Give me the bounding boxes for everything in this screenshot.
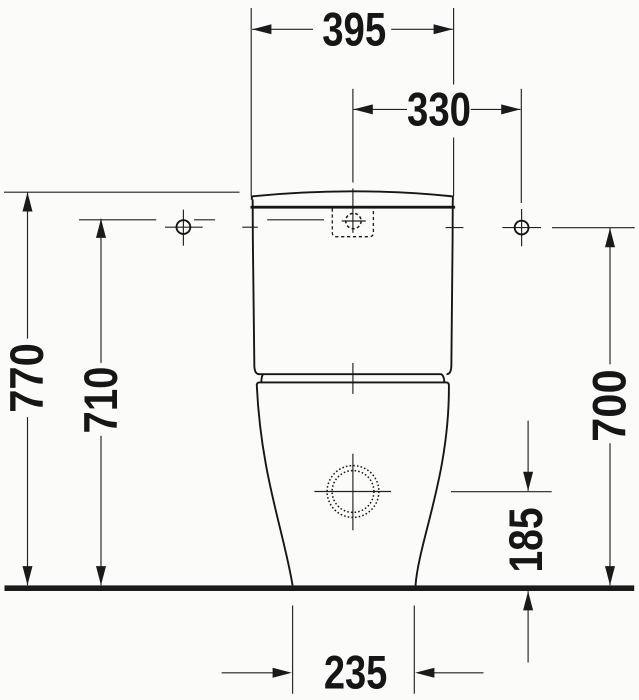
svg-text:700: 700 <box>583 369 636 442</box>
svg-text:710: 710 <box>75 367 128 434</box>
svg-text:330: 330 <box>407 83 471 136</box>
svg-text:395: 395 <box>322 4 386 57</box>
svg-text:770: 770 <box>1 343 54 413</box>
svg-text:235: 235 <box>324 646 388 699</box>
svg-text:185: 185 <box>500 508 553 573</box>
